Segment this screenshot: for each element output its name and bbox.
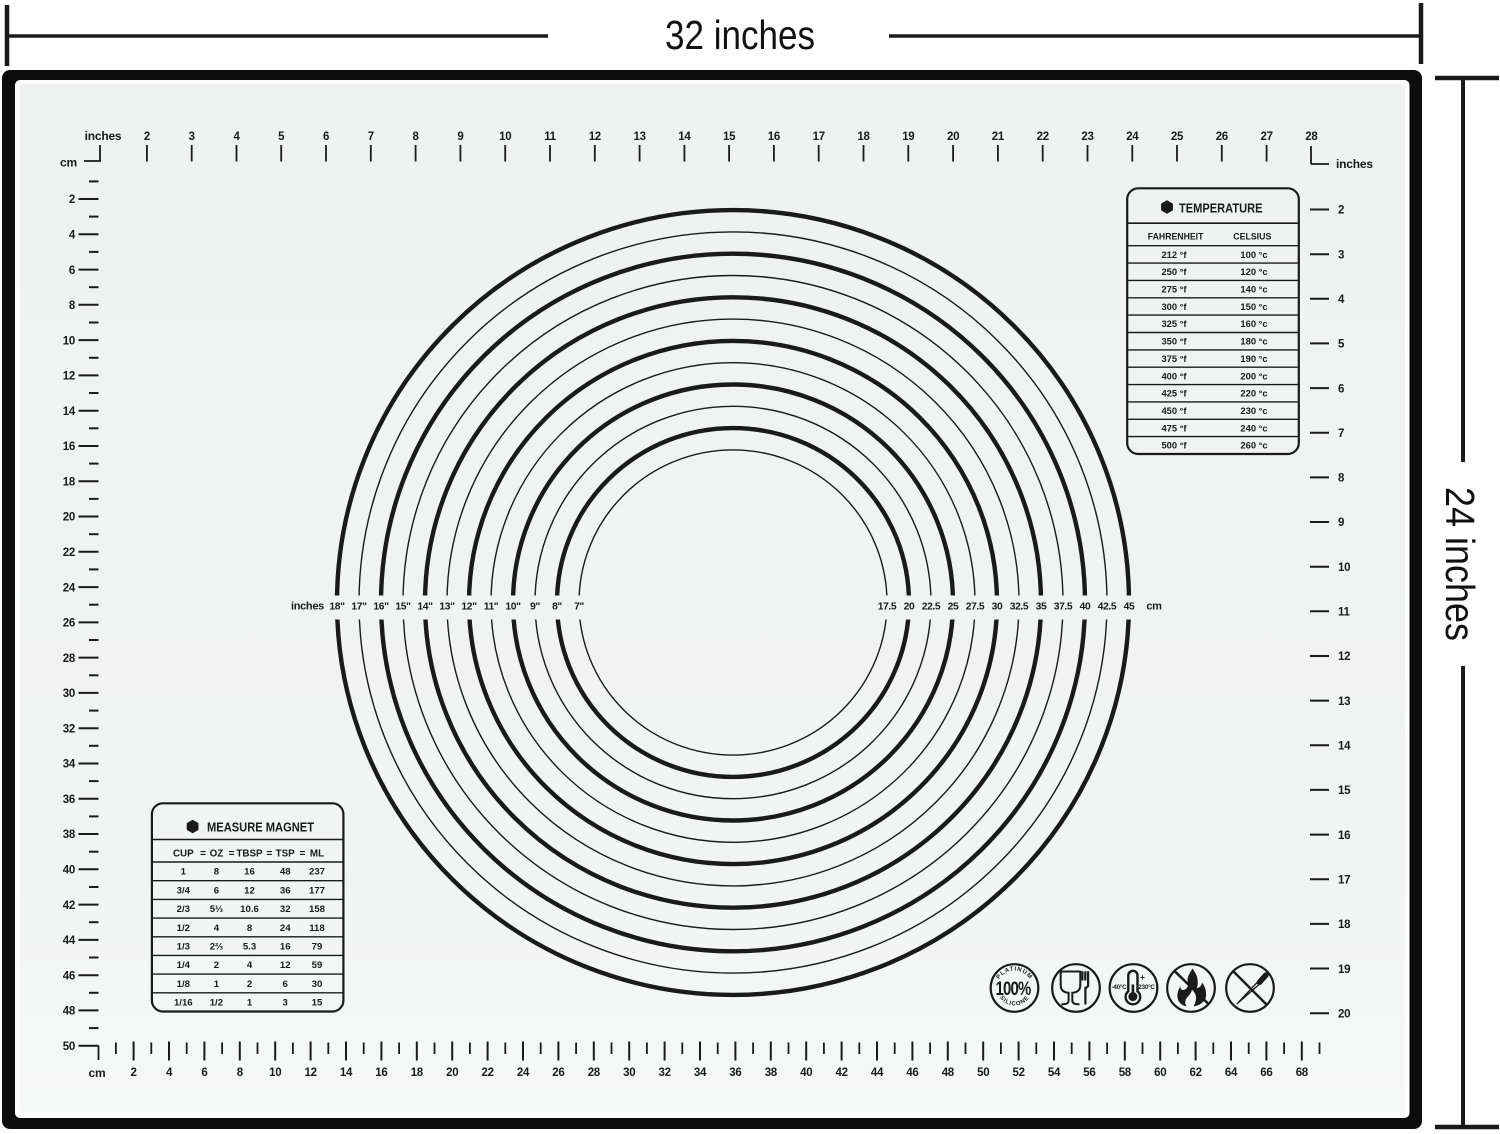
svg-text:10: 10: [1338, 562, 1350, 574]
svg-text:220 °c: 220 °c: [1240, 388, 1267, 399]
svg-text:45: 45: [1124, 602, 1135, 613]
svg-text:52: 52: [1012, 1067, 1024, 1079]
svg-text:2: 2: [144, 131, 150, 143]
svg-text:22: 22: [481, 1067, 493, 1079]
svg-text:48: 48: [942, 1067, 955, 1079]
svg-text:1: 1: [214, 979, 220, 990]
svg-text:24: 24: [63, 582, 76, 594]
svg-text:32.5: 32.5: [1010, 602, 1029, 613]
svg-text:66: 66: [1260, 1067, 1272, 1079]
svg-text:22.5: 22.5: [922, 602, 941, 613]
svg-text:200 °c: 200 °c: [1240, 370, 1267, 381]
svg-text:9: 9: [457, 131, 463, 143]
svg-text:8: 8: [69, 300, 76, 312]
svg-text:260 °c: 260 °c: [1240, 440, 1267, 451]
svg-text:100%: 100%: [996, 979, 1032, 1000]
svg-text:24 inches: 24 inches: [1437, 487, 1483, 641]
svg-text:17.5: 17.5: [878, 602, 897, 613]
svg-text:30: 30: [992, 602, 1003, 613]
svg-text:46: 46: [63, 970, 75, 982]
svg-text:160 °c: 160 °c: [1240, 318, 1267, 329]
svg-text:475 °f: 475 °f: [1161, 422, 1187, 433]
svg-text:1/2: 1/2: [210, 998, 223, 1009]
svg-text:375 °f: 375 °f: [1161, 353, 1187, 364]
svg-text:38: 38: [63, 829, 76, 841]
svg-text:OZ: OZ: [210, 849, 224, 860]
svg-text:177: 177: [309, 885, 325, 896]
svg-text:7: 7: [1338, 428, 1344, 440]
svg-text:12: 12: [589, 131, 601, 143]
svg-text:158: 158: [309, 904, 326, 915]
svg-text:FAHRENHEIT: FAHRENHEIT: [1148, 232, 1204, 242]
svg-text:27: 27: [1260, 131, 1272, 143]
svg-text:16: 16: [280, 942, 291, 953]
svg-text:34: 34: [63, 759, 76, 771]
svg-text:3: 3: [283, 998, 288, 1009]
svg-text:40: 40: [63, 865, 75, 877]
svg-text:56: 56: [1083, 1067, 1095, 1079]
svg-text:15: 15: [723, 131, 736, 143]
svg-text:18": 18": [329, 602, 345, 613]
svg-text:190 °c: 190 °c: [1240, 353, 1267, 364]
svg-text:44: 44: [63, 935, 76, 947]
svg-text:237: 237: [309, 867, 325, 878]
svg-text:48: 48: [280, 867, 291, 878]
svg-text:inches: inches: [1336, 157, 1373, 171]
svg-text:15": 15": [395, 602, 411, 613]
svg-text:6: 6: [201, 1067, 207, 1079]
svg-text:14": 14": [417, 602, 433, 613]
svg-text:2: 2: [1338, 205, 1344, 217]
svg-text:100 °c: 100 °c: [1240, 249, 1267, 260]
svg-text:10: 10: [63, 335, 75, 347]
svg-text:3: 3: [189, 131, 195, 143]
svg-text:10.6: 10.6: [240, 904, 259, 915]
svg-text:2/3: 2/3: [177, 904, 190, 915]
svg-text:TBSP: TBSP: [236, 849, 263, 860]
svg-text:18: 18: [411, 1067, 424, 1079]
svg-text:25: 25: [948, 602, 959, 613]
svg-text:14: 14: [1338, 741, 1351, 753]
svg-text:20: 20: [63, 512, 75, 524]
svg-text:79: 79: [312, 942, 323, 953]
svg-text:5.3: 5.3: [243, 942, 256, 953]
svg-text:500 °f: 500 °f: [1161, 440, 1187, 451]
svg-text:19: 19: [902, 131, 914, 143]
svg-text:18: 18: [63, 476, 76, 488]
svg-text:25: 25: [1171, 131, 1184, 143]
svg-text:240 °c: 240 °c: [1240, 422, 1267, 433]
svg-text:4: 4: [247, 960, 253, 971]
svg-text:13: 13: [1338, 696, 1350, 708]
svg-text:230 °c: 230 °c: [1240, 405, 1267, 416]
svg-text:58: 58: [1119, 1067, 1132, 1079]
svg-text:16: 16: [375, 1067, 387, 1079]
svg-text:50: 50: [977, 1067, 989, 1079]
svg-text:16: 16: [244, 867, 255, 878]
svg-text:+: +: [1140, 972, 1145, 982]
svg-text:425 °f: 425 °f: [1161, 388, 1187, 399]
svg-text:48: 48: [63, 1006, 76, 1018]
svg-text:11": 11": [484, 602, 499, 613]
svg-text:36: 36: [280, 885, 291, 896]
svg-text:400 °f: 400 °f: [1161, 370, 1187, 381]
svg-text:22: 22: [1037, 131, 1049, 143]
svg-text:11: 11: [544, 131, 556, 143]
svg-text:150 °c: 150 °c: [1240, 301, 1267, 312]
svg-text:8: 8: [413, 131, 420, 143]
svg-text:8: 8: [1338, 473, 1345, 485]
svg-text:2: 2: [247, 979, 252, 990]
svg-text:24: 24: [1126, 131, 1139, 143]
svg-text:12: 12: [244, 885, 255, 896]
svg-text:16: 16: [1338, 830, 1350, 842]
svg-text:300 °f: 300 °f: [1161, 301, 1187, 312]
svg-text:212 °f: 212 °f: [1161, 249, 1187, 260]
svg-text:32: 32: [658, 1067, 670, 1079]
svg-text:28: 28: [588, 1067, 601, 1079]
svg-text:4: 4: [69, 230, 76, 242]
svg-text:34: 34: [694, 1067, 707, 1079]
svg-text:-40°C: -40°C: [1112, 984, 1128, 991]
svg-text:=: =: [266, 849, 272, 860]
svg-text:MEASURE MAGNET: MEASURE MAGNET: [207, 820, 314, 835]
svg-text:1: 1: [247, 998, 253, 1009]
svg-text:8: 8: [237, 1067, 244, 1079]
svg-text:5: 5: [1338, 339, 1345, 351]
svg-text:59: 59: [312, 960, 323, 971]
svg-text:7: 7: [368, 131, 374, 143]
svg-text:46: 46: [906, 1067, 918, 1079]
svg-text:120 °c: 120 °c: [1240, 266, 1267, 277]
svg-text:cm: cm: [89, 1066, 106, 1080]
svg-text:30: 30: [312, 979, 323, 990]
svg-text:36: 36: [729, 1067, 741, 1079]
svg-text:22: 22: [63, 547, 75, 559]
svg-text:26: 26: [1216, 131, 1228, 143]
svg-text:20: 20: [904, 602, 915, 613]
svg-text:9: 9: [1338, 517, 1344, 529]
svg-text:15: 15: [1338, 785, 1351, 797]
svg-text:275 °f: 275 °f: [1161, 284, 1187, 295]
svg-text:12: 12: [1338, 651, 1350, 663]
svg-text:2: 2: [214, 960, 219, 971]
svg-text:4: 4: [233, 131, 240, 143]
svg-text:60: 60: [1154, 1067, 1166, 1079]
svg-text:30: 30: [63, 688, 75, 700]
svg-text:1/2: 1/2: [177, 923, 190, 934]
svg-text:35: 35: [1036, 602, 1047, 613]
svg-text:17: 17: [1338, 875, 1350, 887]
svg-text:325 °f: 325 °f: [1161, 318, 1187, 329]
svg-text:38: 38: [765, 1067, 778, 1079]
svg-text:ML: ML: [310, 849, 324, 860]
svg-text:16": 16": [373, 602, 389, 613]
svg-text:42: 42: [63, 900, 75, 912]
svg-text:23: 23: [1081, 131, 1093, 143]
svg-text:=: =: [229, 849, 235, 860]
svg-text:26: 26: [552, 1067, 564, 1079]
svg-text:cm: cm: [1146, 601, 1162, 613]
svg-text:12: 12: [304, 1067, 316, 1079]
svg-text:14: 14: [678, 131, 691, 143]
svg-text:180 °c: 180 °c: [1240, 336, 1267, 347]
svg-text:10: 10: [499, 131, 511, 143]
svg-text:cm: cm: [60, 156, 77, 170]
svg-text:inches: inches: [85, 129, 122, 143]
svg-text:6: 6: [1338, 383, 1344, 395]
svg-text:24: 24: [280, 923, 291, 934]
svg-text:2: 2: [69, 194, 75, 206]
svg-text:1/4: 1/4: [177, 960, 191, 971]
svg-text:20: 20: [947, 131, 959, 143]
svg-text:1/8: 1/8: [177, 979, 191, 990]
svg-text:5: 5: [278, 131, 285, 143]
svg-text:24: 24: [517, 1067, 530, 1079]
svg-text:CELSIUS: CELSIUS: [1233, 232, 1271, 242]
svg-text:6: 6: [323, 131, 329, 143]
svg-text:250 °f: 250 °f: [1161, 266, 1187, 277]
svg-text:62: 62: [1189, 1067, 1201, 1079]
svg-text:13: 13: [633, 131, 645, 143]
svg-text:TEMPERATURE: TEMPERATURE: [1179, 201, 1263, 216]
svg-text:40: 40: [800, 1067, 812, 1079]
svg-text:30: 30: [623, 1067, 635, 1079]
svg-text:14: 14: [63, 406, 76, 418]
svg-text:inches: inches: [291, 601, 324, 613]
svg-text:3/4: 3/4: [177, 885, 191, 896]
svg-text:44: 44: [871, 1067, 884, 1079]
svg-text:6: 6: [283, 979, 288, 990]
svg-text:42: 42: [835, 1067, 847, 1079]
svg-text:28: 28: [63, 653, 76, 665]
svg-text:118: 118: [309, 923, 325, 934]
svg-text:40: 40: [1080, 602, 1091, 613]
svg-text:20: 20: [446, 1067, 458, 1079]
svg-text:8: 8: [247, 923, 253, 934]
svg-text:36: 36: [63, 794, 75, 806]
svg-text:3: 3: [1338, 249, 1344, 261]
svg-text:8": 8": [552, 602, 562, 613]
svg-text:1/16: 1/16: [174, 998, 193, 1009]
svg-text:4: 4: [1338, 294, 1345, 306]
svg-text:TSP: TSP: [276, 849, 296, 860]
svg-text:6: 6: [214, 885, 219, 896]
svg-text:12: 12: [280, 960, 291, 971]
svg-text:18: 18: [857, 131, 870, 143]
svg-text:9": 9": [530, 602, 540, 613]
svg-text:18: 18: [1338, 919, 1351, 931]
svg-text:42.5: 42.5: [1098, 602, 1117, 613]
svg-text:140 °c: 140 °c: [1240, 284, 1267, 295]
svg-text:19: 19: [1338, 964, 1350, 976]
svg-text:4: 4: [166, 1067, 173, 1079]
svg-text:12": 12": [461, 602, 477, 613]
svg-text:230°C: 230°C: [1138, 984, 1155, 991]
svg-text:32: 32: [63, 723, 75, 735]
svg-text:26: 26: [63, 618, 75, 630]
svg-text:5⅓: 5⅓: [210, 904, 223, 915]
svg-text:1/3: 1/3: [177, 942, 190, 953]
svg-text:16: 16: [768, 131, 780, 143]
svg-text:37.5: 37.5: [1054, 602, 1073, 613]
svg-text:32: 32: [280, 904, 291, 915]
svg-text:350 °f: 350 °f: [1161, 336, 1187, 347]
svg-text:10: 10: [269, 1067, 281, 1079]
svg-text:7": 7": [574, 602, 584, 613]
svg-text:14: 14: [340, 1067, 353, 1079]
svg-text:8: 8: [214, 867, 220, 878]
svg-text:10": 10": [505, 602, 521, 613]
svg-text:32 inches: 32 inches: [665, 12, 815, 58]
svg-text:450 °f: 450 °f: [1161, 405, 1187, 416]
svg-text:15: 15: [312, 998, 323, 1009]
svg-text:CUP: CUP: [173, 849, 194, 860]
svg-text:21: 21: [992, 131, 1005, 143]
svg-text:17": 17": [351, 602, 367, 613]
svg-text:4: 4: [214, 923, 220, 934]
svg-text:20: 20: [1338, 1008, 1350, 1020]
svg-text:17: 17: [813, 131, 825, 143]
svg-text:12: 12: [63, 371, 75, 383]
svg-text:1: 1: [181, 867, 187, 878]
svg-text:68: 68: [1296, 1067, 1309, 1079]
svg-text:50: 50: [63, 1041, 75, 1053]
svg-text:54: 54: [1048, 1067, 1061, 1079]
svg-text:=: =: [299, 849, 305, 860]
svg-text:28: 28: [1305, 131, 1318, 143]
svg-text:16: 16: [63, 441, 75, 453]
svg-text:=: =: [200, 849, 206, 860]
svg-text:64: 64: [1225, 1067, 1238, 1079]
svg-text:2⅔: 2⅔: [210, 942, 223, 953]
svg-text:11: 11: [1338, 607, 1350, 619]
svg-text:6: 6: [69, 265, 75, 277]
svg-text:13": 13": [439, 602, 455, 613]
svg-text:27.5: 27.5: [966, 602, 985, 613]
svg-text:2: 2: [131, 1067, 137, 1079]
